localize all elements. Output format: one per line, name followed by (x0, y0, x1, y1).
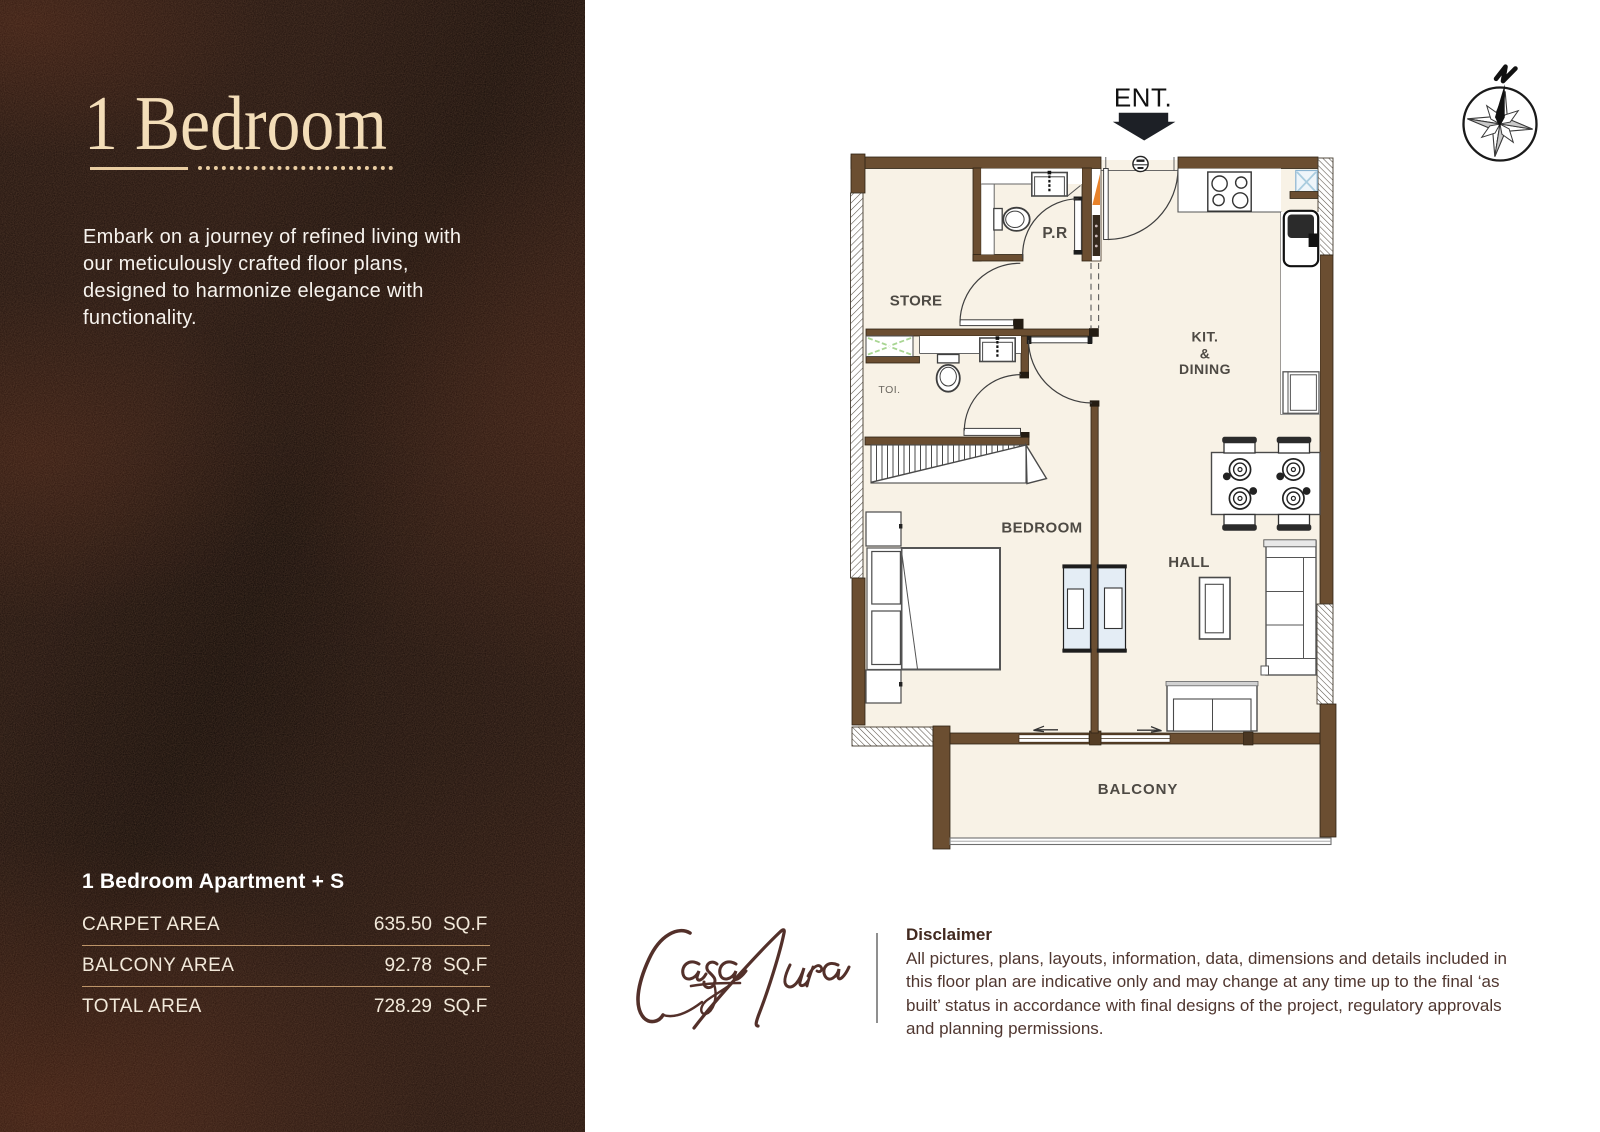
svg-text:&: & (1200, 346, 1211, 362)
svg-text:BEDROOM: BEDROOM (1001, 520, 1082, 537)
svg-text:KIT.: KIT. (1192, 329, 1219, 345)
svg-text:STORE: STORE (890, 293, 942, 310)
svg-text:DINING: DINING (1179, 361, 1231, 377)
svg-text:ENT.: ENT. (1114, 83, 1172, 113)
svg-text:P.R: P.R (1042, 225, 1067, 242)
svg-text:BALCONY: BALCONY (1098, 781, 1178, 798)
svg-text:HALL: HALL (1168, 554, 1210, 571)
svg-text:TOI.: TOI. (878, 384, 900, 396)
